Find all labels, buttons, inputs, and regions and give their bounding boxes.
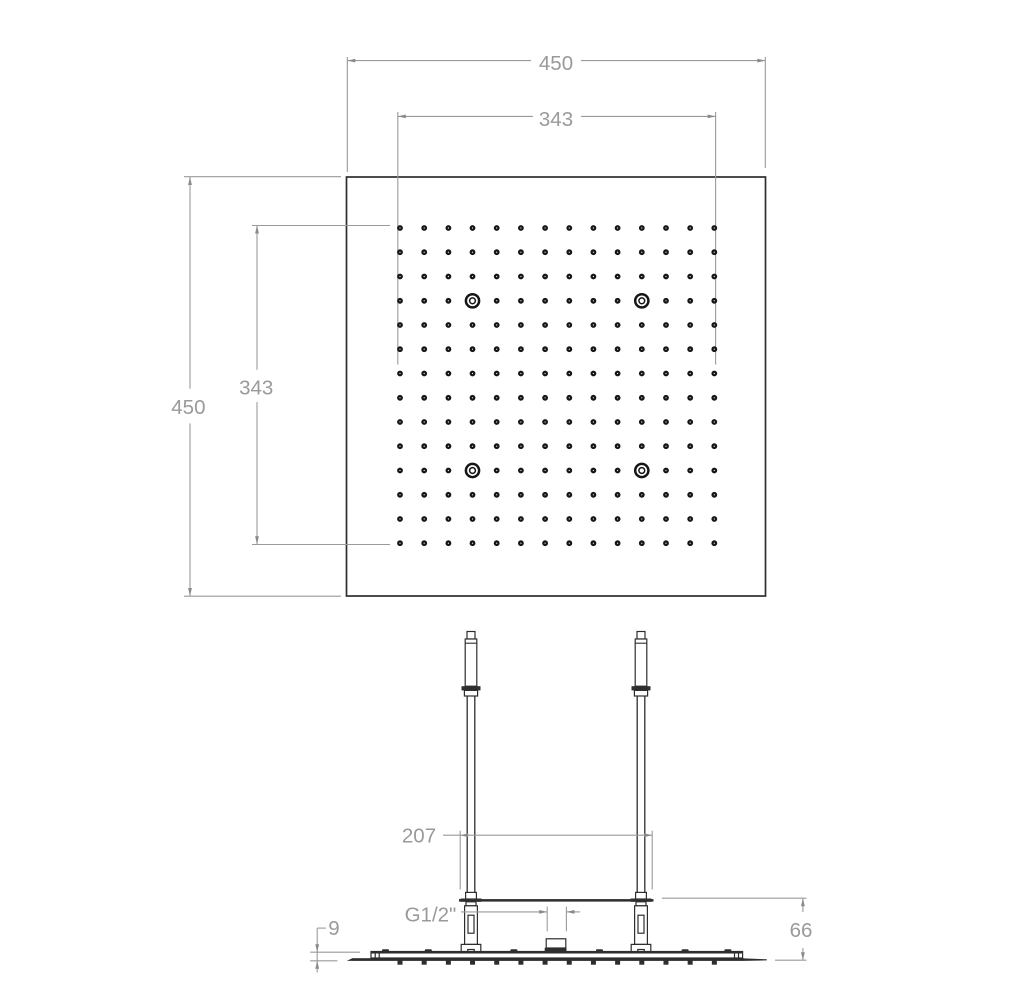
svg-text:9: 9	[328, 917, 339, 940]
svg-text:343: 343	[239, 376, 273, 399]
svg-text:450: 450	[539, 52, 573, 75]
svg-text:66: 66	[790, 919, 813, 942]
svg-text:207: 207	[402, 825, 436, 848]
svg-text:343: 343	[539, 108, 573, 131]
svg-text:450: 450	[171, 396, 205, 419]
svg-text:G1/2": G1/2"	[405, 904, 457, 927]
